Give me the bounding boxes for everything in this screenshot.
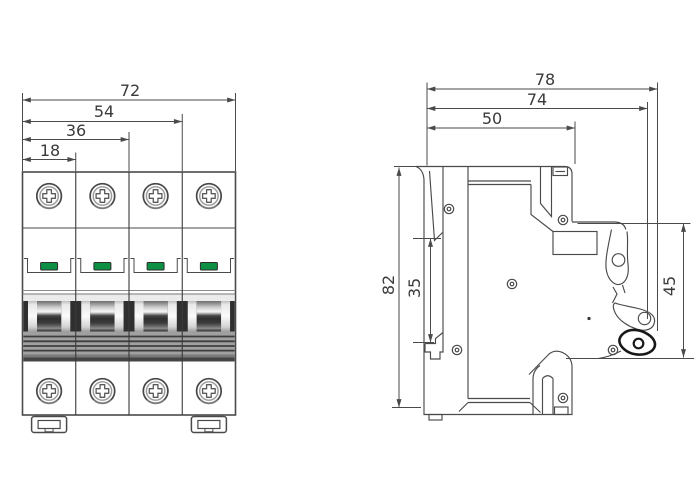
- breaker-drawing: [0, 0, 700, 500]
- handle-side-bar: [61, 301, 70, 332]
- screw-head-icon: [143, 379, 168, 404]
- screw-head-icon: [90, 379, 115, 404]
- screw-head-icon: [37, 379, 62, 404]
- dim-label-72: 72: [120, 83, 140, 99]
- lever-arm: [606, 230, 628, 285]
- dim-label-36: 36: [66, 123, 86, 139]
- screw-head-icon: [90, 184, 115, 209]
- dim-label-35: 35: [407, 278, 423, 298]
- toggle-handle: [144, 301, 168, 332]
- din-rail-clip: [191, 417, 226, 433]
- handle-side-bar: [28, 301, 37, 332]
- top-terminal-slot: [541, 167, 552, 217]
- handle-side-bar: [188, 301, 197, 332]
- status-indicator-window: [147, 263, 164, 271]
- toggle-knob: [619, 330, 655, 355]
- screw-head-icon: [197, 184, 222, 209]
- dim-label-74: 74: [527, 92, 547, 108]
- dim-label-82: 82: [381, 275, 397, 295]
- rivet-icon: [558, 393, 567, 402]
- rivet-icon: [452, 345, 461, 354]
- terminal-block: [553, 232, 597, 255]
- toggle-handle: [197, 301, 221, 332]
- status-indicator-window: [94, 263, 111, 271]
- front-view: [23, 172, 236, 433]
- side-body-outline: [416, 167, 572, 415]
- pivot-dot: [587, 317, 590, 320]
- rivet-icon: [558, 215, 567, 224]
- toggle-handle: [37, 301, 61, 332]
- screw-head-icon: [37, 184, 62, 209]
- handle-side-bar: [221, 301, 230, 332]
- lever-pivot-pin: [638, 312, 650, 324]
- handle-side-bar: [81, 301, 90, 332]
- side-view: [416, 167, 694, 421]
- toggle-handle: [90, 301, 114, 332]
- dim-label-78: 78: [535, 72, 555, 88]
- din-rail-clip: [32, 417, 67, 433]
- rivet-icon: [507, 279, 516, 288]
- screw-head-icon: [197, 379, 222, 404]
- screw-head-icon: [143, 184, 168, 209]
- dim-label-54: 54: [94, 104, 114, 120]
- lever-arm-hole: [612, 254, 625, 267]
- status-indicator-window: [41, 263, 58, 271]
- handle-side-bar: [115, 301, 124, 332]
- rivet-icon: [444, 204, 453, 213]
- dim-label-45: 45: [662, 276, 678, 296]
- din-channel: [425, 167, 443, 420]
- dim-label-50: 50: [482, 111, 502, 127]
- dim-label-18: 18: [40, 143, 60, 159]
- handle-side-bar: [135, 301, 144, 332]
- bottom-terminal-slot: [543, 376, 554, 415]
- status-indicator-window: [200, 263, 217, 271]
- handle-side-bar: [168, 301, 177, 332]
- technical-drawing-canvas: 72 54 36 18 78 74 50 82 35 45: [0, 0, 700, 500]
